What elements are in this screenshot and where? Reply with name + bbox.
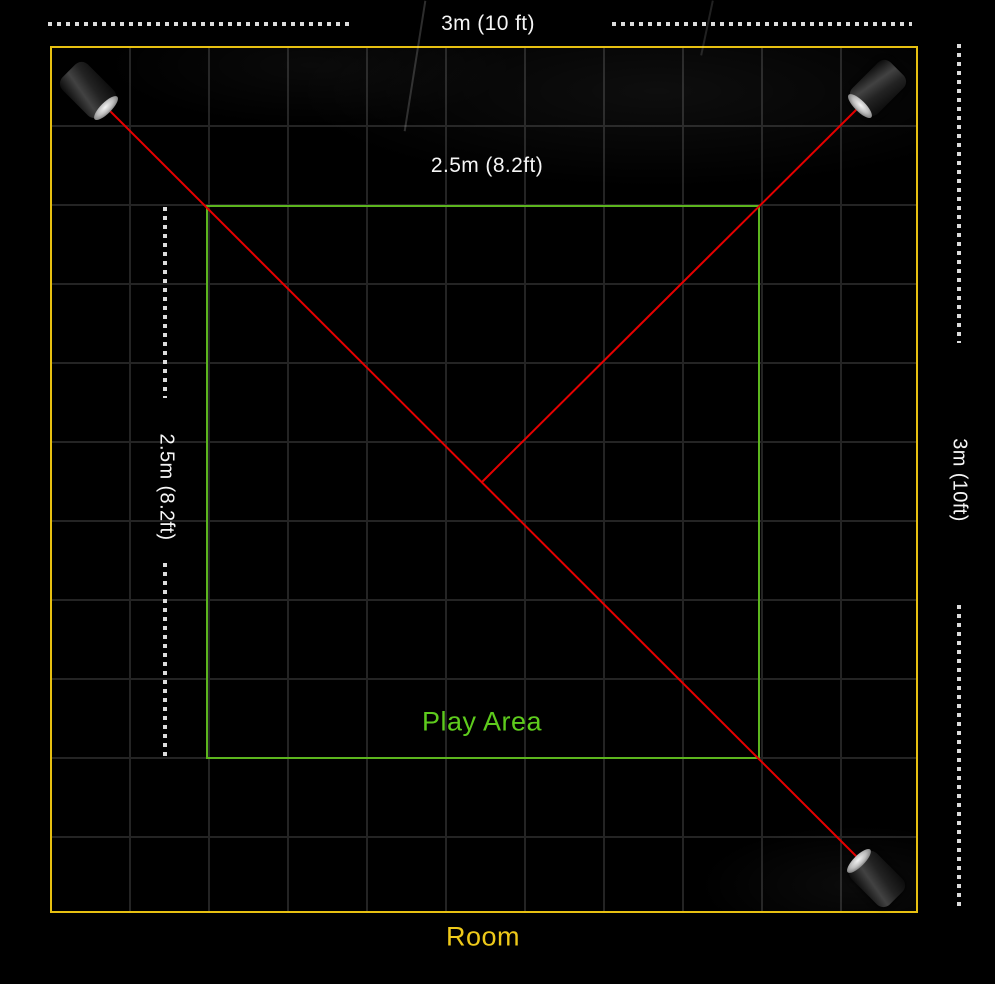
- play-area-outline: [206, 205, 760, 759]
- play-area-height-label: 2.5m (8.2ft): [155, 433, 178, 540]
- play-area-caption: Play Area: [422, 707, 542, 738]
- room-height-label: 3m (10ft): [948, 438, 971, 522]
- play-area-height-dash-upper: [163, 207, 167, 398]
- room-height-dash-upper: [957, 44, 961, 343]
- room-width-dash-left: [48, 22, 352, 26]
- room-caption: Room: [446, 922, 520, 953]
- room-setup-diagram: 3m (10 ft) 3m (10ft) 2.5m (8.2ft) 2.5m (…: [0, 0, 995, 984]
- play-area-height-dash-lower: [163, 563, 167, 758]
- room-height-dash-lower: [957, 605, 961, 907]
- play-area-width-label: 2.5m (8.2ft): [431, 154, 543, 178]
- room-width-label: 3m (10 ft): [441, 12, 535, 36]
- room-width-dash-right: [612, 22, 912, 26]
